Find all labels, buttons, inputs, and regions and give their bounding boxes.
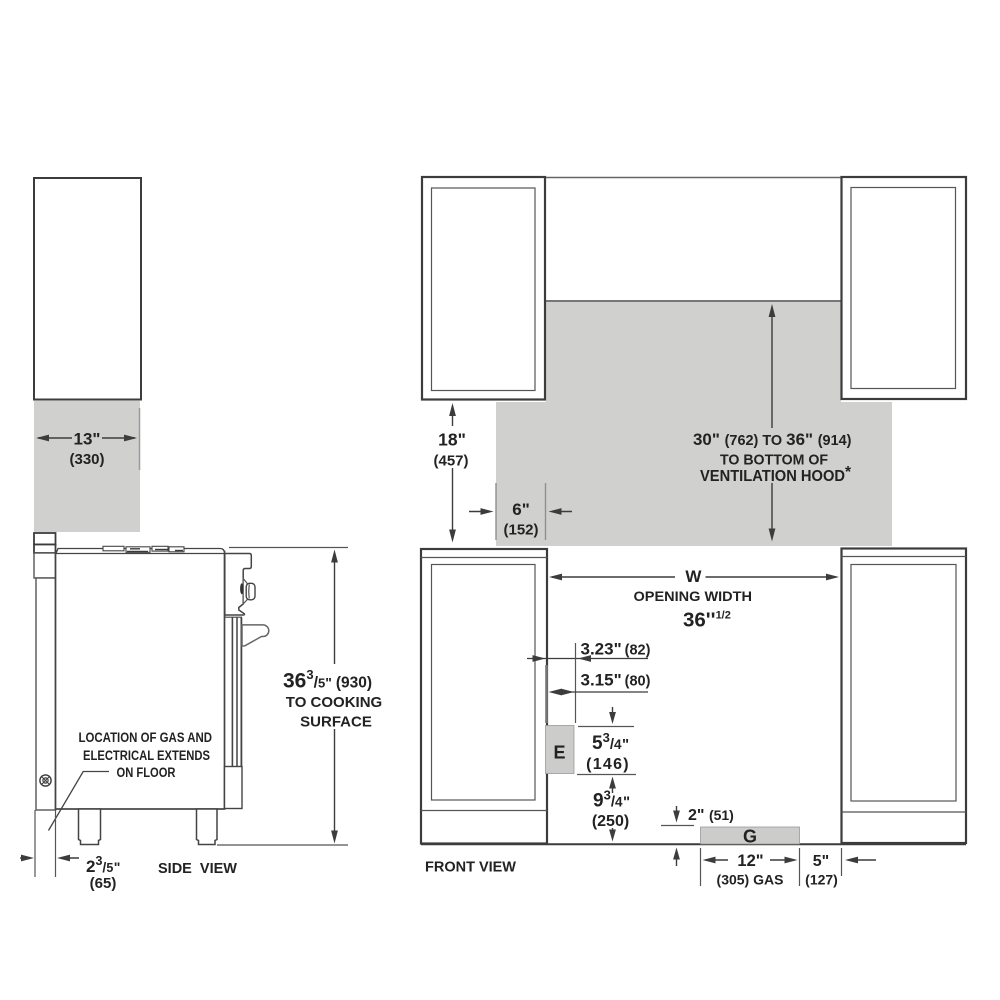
svg-text:SURFACE: SURFACE — [300, 714, 372, 731]
svg-text:(457): (457) — [433, 453, 468, 470]
svg-text:2" (51): 2" (51) — [688, 807, 734, 824]
svg-text:(65): (65) — [90, 875, 117, 892]
svg-text:OPENING WIDTH: OPENING WIDTH — [634, 588, 753, 604]
svg-text:12": 12" — [737, 852, 763, 870]
svg-text:VENTILATION HOOD: VENTILATION HOOD — [700, 468, 845, 485]
svg-text:LOCATION OF GAS AND: LOCATION OF GAS AND — [79, 730, 213, 745]
svg-text:FRONT VIEW: FRONT VIEW — [425, 860, 516, 876]
svg-text:(146): (146) — [586, 756, 630, 773]
svg-text:ELECTRICAL EXTENDS: ELECTRICAL EXTENDS — [83, 748, 210, 763]
svg-text:TO BOTTOM OF: TO BOTTOM OF — [720, 452, 828, 469]
svg-text:(127): (127) — [805, 872, 838, 888]
svg-text:5": 5" — [813, 853, 829, 870]
svg-text:ON FLOOR: ON FLOOR — [117, 765, 176, 780]
svg-text:G: G — [743, 827, 757, 847]
svg-text:(305) GAS: (305) GAS — [717, 872, 784, 888]
svg-text:6": 6" — [512, 500, 530, 519]
svg-text:3.23"(82): 3.23"(82) — [581, 640, 651, 659]
svg-text:(250): (250) — [592, 813, 629, 830]
svg-text:E: E — [553, 743, 565, 763]
svg-text:(152): (152) — [503, 522, 538, 539]
svg-text:13": 13" — [74, 430, 101, 449]
svg-text:3.15"(80): 3.15"(80) — [581, 671, 651, 690]
svg-text:W: W — [685, 567, 702, 586]
svg-text:*: * — [845, 464, 852, 481]
svg-text:(330): (330) — [69, 451, 104, 468]
svg-text:18": 18" — [438, 430, 466, 450]
svg-text:TO COOKING: TO COOKING — [286, 694, 382, 711]
svg-text:SIDE VIEW: SIDE VIEW — [158, 860, 238, 877]
svg-text:30" (762) TO 36" (914): 30" (762) TO 36" (914) — [693, 430, 852, 449]
